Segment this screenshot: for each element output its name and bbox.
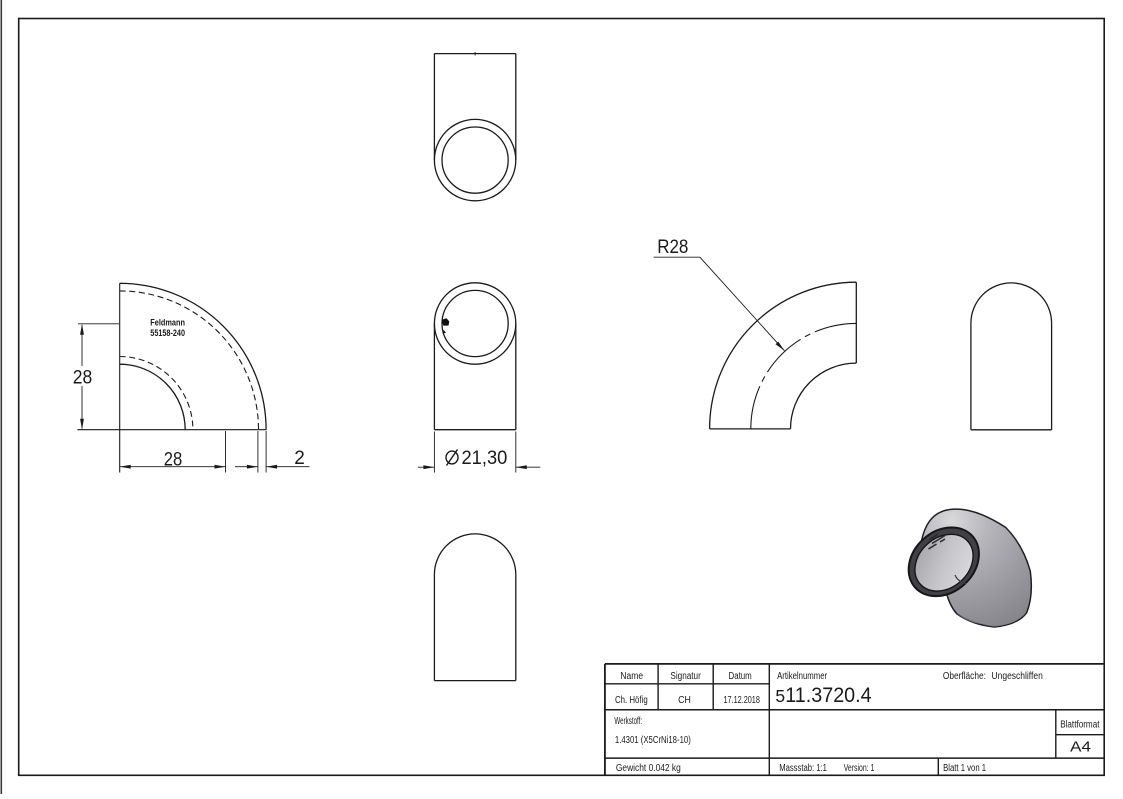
svg-text:Werkstoff:: Werkstoff: [614, 716, 642, 727]
svg-text:2: 2 [294, 448, 305, 469]
svg-text:Oberfläche:: Oberfläche: [943, 671, 986, 682]
svg-text:Feldmann: Feldmann [150, 318, 185, 328]
svg-text:17.12.2018: 17.12.2018 [724, 694, 761, 706]
svg-text:Datum: Datum [729, 671, 752, 682]
svg-text:Name: Name [620, 671, 643, 682]
svg-text:Version: 1: Version: 1 [844, 763, 875, 774]
svg-text:Ungeschliffen: Ungeschliffen [992, 671, 1043, 682]
svg-text:21,30: 21,30 [462, 448, 508, 469]
svg-text:Massstab: 1:1: Massstab: 1:1 [779, 763, 827, 774]
svg-text:1.4301 (X5CrNi18-10): 1.4301 (X5CrNi18-10) [615, 735, 691, 746]
svg-text:Blattformat: Blattformat [1060, 720, 1099, 731]
svg-text:Artikelnummer: Artikelnummer [777, 671, 828, 682]
svg-text:A4: A4 [1070, 739, 1091, 756]
svg-text:55158-240: 55158-240 [150, 328, 185, 338]
svg-text:Blatt 1 von 1: Blatt 1 von 1 [943, 763, 986, 774]
svg-text:Gewicht 0.042 kg: Gewicht 0.042 kg [616, 763, 681, 774]
svg-text:5: 5 [775, 686, 785, 706]
svg-text:28: 28 [164, 449, 183, 470]
svg-text:28: 28 [73, 367, 93, 388]
svg-text:R28: R28 [657, 237, 688, 258]
svg-text:CH: CH [678, 694, 691, 706]
svg-text:11.3720.4: 11.3720.4 [785, 683, 871, 707]
svg-text:Signatur: Signatur [670, 671, 701, 682]
svg-text:Ch. Höfig: Ch. Höfig [615, 694, 648, 706]
